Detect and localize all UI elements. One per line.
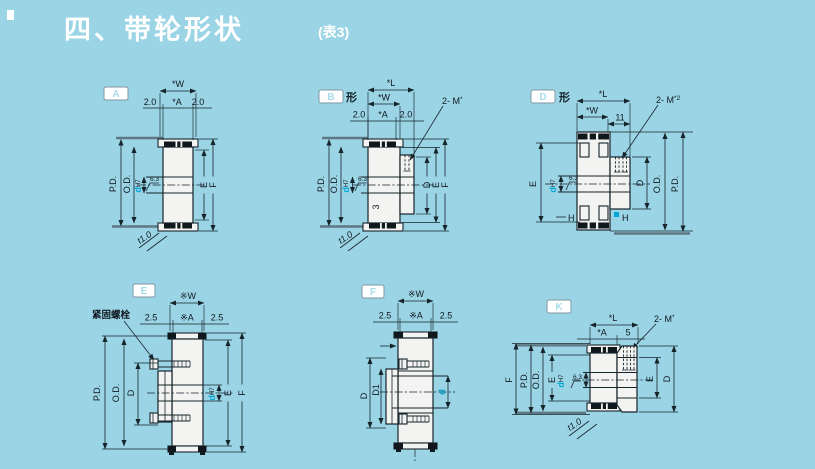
web-mark-label: 3 (371, 204, 381, 209)
pulley-shapes-sheet: 四、带轮形状 (表3) A (0, 0, 815, 469)
dim-w-label: ※W (180, 291, 197, 301)
section-cyan-mark (614, 212, 619, 217)
dim-a-label: *A (378, 110, 388, 120)
bore-label: dH7 (341, 179, 351, 193)
bore-dimension-k: dH7 6.3 (556, 373, 586, 389)
table-reference: (表3) (318, 22, 349, 42)
pulley-section-f (380, 332, 455, 461)
tag-letter-e: E (141, 286, 148, 297)
dim-f-label: F (504, 377, 514, 383)
bore-label: dH7 (548, 179, 558, 193)
surface-finish-label: 6.3 (573, 374, 582, 381)
tag-box-d: D 形 (531, 90, 570, 104)
shape-suffix-d: 形 (559, 91, 570, 104)
dim-a-label: ※A (409, 311, 423, 321)
dimension-a-row-f: 2.5 ※A 2.5 (373, 311, 458, 333)
dimension-d-d: D (632, 157, 651, 209)
bore-dimension-a: dH7 6.3 (133, 176, 159, 193)
dim-l-label: *L (387, 78, 396, 88)
dimension-pd-b: P.D. (316, 140, 329, 227)
set-screw-callout-d: 2- M*2 (622, 95, 681, 158)
hub-length-label: 11 (615, 113, 624, 123)
set-screw-label: 2- M* (442, 96, 463, 106)
flange-thickness-label: t1.0 (565, 416, 583, 433)
dim-pd-label: P.D. (108, 176, 118, 192)
dimension-od-k: O.D. (531, 347, 543, 411)
dimension-pd-a: P.D. (108, 140, 121, 227)
section-h-left: H (568, 213, 575, 223)
dim-e-right-label: E (645, 376, 655, 382)
bore-dimension-b: dH7 6.3 (341, 176, 367, 193)
dimension-d1-f: D1 (371, 369, 381, 424)
dim-w-label: *W (172, 79, 185, 89)
dim-pd-label: P.D. (92, 385, 102, 401)
dimension-a-row-a: 2.0 *A 2.0 (143, 97, 212, 140)
dim-w-label: *W (378, 93, 391, 103)
clamp-bolt-label: 紧固螺栓 (92, 309, 131, 321)
edge-left-label: 2.0 (144, 97, 157, 107)
edge-right-label: 2.0 (192, 97, 205, 107)
edge-right-label: 2.5 (440, 311, 453, 321)
dim-w-label: *W (586, 106, 599, 116)
dim-f-label: F (208, 182, 218, 188)
edge-right-label: 2.0 (400, 110, 413, 120)
dimension-pd-e: P.D. (92, 336, 105, 449)
bore-label: dH7 (207, 387, 217, 401)
dim-a-label: *A (172, 97, 182, 107)
dimension-a-row-b: 2.0 *A 2.0 (350, 110, 424, 141)
dim-e-label: E (528, 181, 538, 187)
dim-od-label: O.D. (122, 175, 132, 194)
dim-od-label: O.D. (652, 175, 662, 194)
dimension-f-k: F (504, 344, 516, 415)
diagram-b: B 形 3 (315, 56, 530, 265)
tag-letter-k: K (555, 302, 563, 313)
bore-label: dH7 (556, 374, 566, 388)
surface-finish-label: 6.3 (358, 176, 367, 183)
dim-d1-label: D1 (371, 384, 381, 396)
bore-label: dH7 (133, 179, 143, 193)
dim-od-label: O.D. (111, 384, 121, 403)
tag-letter-d: D (539, 92, 546, 103)
dimension-od-a: O.D. (122, 147, 134, 223)
dimension-a-row-e: 2.5 ※A 2.5 (140, 313, 229, 335)
surface-finish-label: 6.3 (569, 175, 578, 182)
dim-e-label: E (223, 390, 233, 396)
tag-box-k: K (547, 300, 571, 313)
dimension-hub-length-d: 11 (608, 113, 630, 125)
dim-d-label: D (662, 375, 672, 382)
dim-a-label: ※A (180, 313, 194, 323)
set-screw-callout-b: 2- M* (410, 96, 463, 160)
section-h-right: H (622, 213, 629, 223)
dim-pd-label: P.D. (670, 176, 680, 192)
bore-dimension-f: d (437, 376, 448, 408)
dim-a-label: *A (597, 328, 607, 338)
set-screw-callout-k: 2- M* (632, 314, 675, 349)
bore-label: d (437, 389, 448, 395)
dim-od-label: O.D. (531, 371, 541, 390)
flange-thickness-label: t1.0 (135, 229, 153, 246)
tag-box-f: F (362, 285, 384, 298)
dimension-w-e: ※W (170, 291, 204, 331)
dim-d-label: D (359, 392, 369, 399)
dim-l-label: *L (599, 89, 608, 99)
dim-w-label: ※W (408, 289, 425, 299)
dimension-pd-d: P.D. (670, 132, 683, 232)
dimension-d-b: D (416, 157, 432, 214)
edge-left-label: 2.0 (353, 110, 366, 120)
dim-d-label: D (126, 389, 136, 396)
shape-suffix-b: 形 (346, 91, 357, 104)
diagram-d: D 形 (525, 56, 755, 265)
dim-pd-label: P.D. (519, 372, 529, 388)
set-screw-label: 2- M*2 (656, 95, 681, 105)
dim-d-label: D (635, 179, 645, 186)
diagram-e: E 紧固螺栓 ※W 2.5 ※A 2.5 (70, 272, 310, 469)
surface-finish-label: 6.3 (150, 176, 159, 183)
tag-box-a: A (104, 87, 128, 100)
dim-f-label: F (237, 390, 247, 396)
diagram-k: K *L *A 5 2- M* (500, 280, 755, 469)
dimension-od-d: O.D. (652, 133, 665, 230)
tag-letter-f: F (370, 287, 376, 298)
flange-thickness-a: t1.0 (135, 229, 167, 251)
dimension-w-f: ※W (398, 289, 433, 330)
corner-mark (7, 10, 14, 20)
tag-box-b: B 形 (319, 90, 357, 104)
dim-od-label: O.D. (329, 175, 339, 194)
dimension-od-b: O.D. (329, 147, 341, 223)
dim-e-left-label: E (547, 377, 557, 383)
edge-right-label: 2.5 (211, 313, 224, 323)
dim-l-label: *L (609, 313, 618, 323)
diagram-a: A *W 2.0 *A (95, 56, 315, 260)
dimension-pd-k: P.D. (519, 345, 531, 413)
dimension-e-left-k: E (547, 355, 590, 401)
flange-thickness-label: t1.0 (336, 229, 354, 246)
hub-length-label: 5 (625, 328, 630, 338)
edge-left-label: 2.5 (379, 311, 392, 321)
dim-f-label: F (440, 182, 450, 188)
page-title: 四、带轮形状 (64, 8, 244, 47)
edge-left-label: 2.5 (145, 313, 158, 323)
flange-thickness-k: t1.0 (565, 416, 597, 439)
tag-letter-a: A (112, 89, 119, 100)
tag-box-e: E (133, 284, 155, 297)
dimension-w-d: *W (577, 106, 608, 133)
flange-thickness-b: t1.0 (336, 229, 368, 251)
tag-letter-b: B (327, 92, 334, 103)
set-screw-label: 2- M* (654, 314, 675, 324)
dimension-e-right-k: E (639, 358, 661, 399)
dimension-od-e: O.D. (111, 339, 124, 446)
dim-pd-label: P.D. (316, 176, 326, 192)
